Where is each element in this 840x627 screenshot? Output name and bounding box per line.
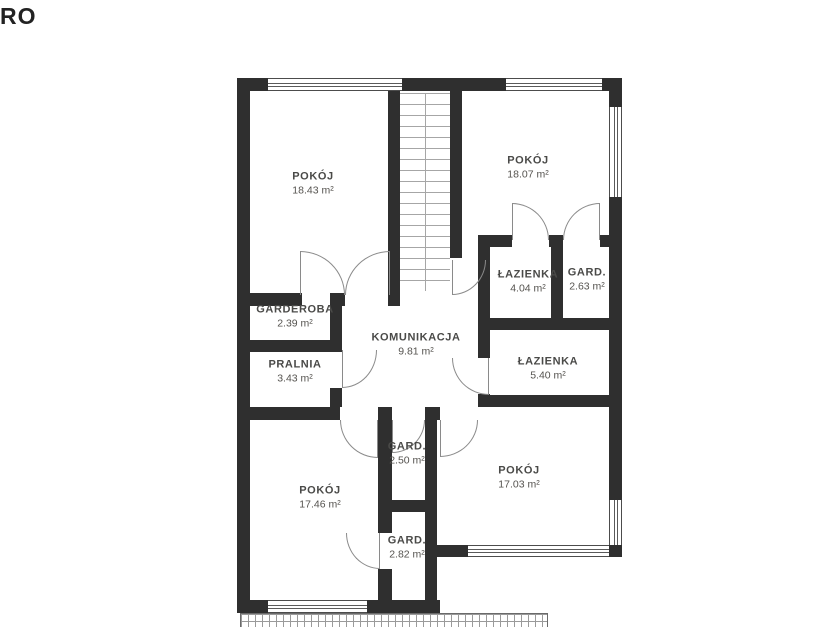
wall xyxy=(478,395,609,407)
door-arc xyxy=(345,251,390,295)
room-area: 5.40 m² xyxy=(518,369,578,382)
door-arc xyxy=(563,203,600,240)
watermark-logo: RO xyxy=(0,3,37,30)
room-name: ŁAZIENKA xyxy=(498,269,558,283)
room-name: GARD. xyxy=(388,535,426,549)
room-area: 17.46 m² xyxy=(299,498,341,511)
window xyxy=(609,107,622,197)
wall xyxy=(600,235,609,247)
staircase-icon xyxy=(400,93,450,291)
room-area: 2.82 m² xyxy=(388,548,426,561)
window xyxy=(609,500,622,545)
room-label-lazienka-5-40: ŁAZIENKA 5.40 m² xyxy=(518,356,578,383)
door-arc xyxy=(452,358,489,395)
wall xyxy=(378,420,392,533)
room-name: POKÓJ xyxy=(507,155,549,169)
room-area: 17.03 m² xyxy=(498,478,540,491)
room-label-pokoj-17-03: POKÓJ 17.03 m² xyxy=(498,465,540,492)
room-label-komunikacja-9-81: KOMUNIKACJA 9.81 m² xyxy=(371,332,460,359)
room-name: GARD. xyxy=(388,441,426,455)
door-arc xyxy=(440,420,478,457)
room-label-pokoj-17-46: POKÓJ 17.46 m² xyxy=(299,485,341,512)
room-area: 18.43 m² xyxy=(292,184,334,197)
room-name: KOMUNIKACJA xyxy=(371,332,460,346)
room-area: 18.07 m² xyxy=(507,168,549,181)
room-name: POKÓJ xyxy=(292,171,334,185)
wall xyxy=(237,407,340,420)
room-area: 2.63 m² xyxy=(568,280,606,293)
room-label-gard-2-50: GARD. 2.50 m² xyxy=(388,441,426,468)
wall xyxy=(378,407,392,420)
room-label-gard-2-82: GARD. 2.82 m² xyxy=(388,535,426,562)
room-area: 4.04 m² xyxy=(498,282,558,295)
wall xyxy=(478,235,490,330)
wall xyxy=(237,340,342,352)
wall xyxy=(450,91,462,258)
room-label-pokoj-18-43: POKÓJ 18.43 m² xyxy=(292,171,334,198)
window xyxy=(506,78,602,91)
room-name: ŁAZIENKA xyxy=(518,356,578,370)
room-label-pokoj-18-07: POKÓJ 18.07 m² xyxy=(507,155,549,182)
room-area: 2.39 m² xyxy=(256,317,334,330)
wall xyxy=(392,500,425,512)
wall xyxy=(478,318,609,330)
room-name: POKÓJ xyxy=(299,485,341,499)
door-arc xyxy=(340,420,378,458)
room-label-garderoba-2-39: GARDEROBA 2.39 m² xyxy=(256,304,334,331)
room-name: POKÓJ xyxy=(498,465,540,479)
room-name: PRALNIA xyxy=(268,359,321,373)
room-area: 3.43 m² xyxy=(268,372,321,385)
window xyxy=(268,78,402,91)
wall xyxy=(378,569,392,600)
room-area: 2.50 m² xyxy=(388,454,426,467)
wall xyxy=(478,330,490,358)
room-name: GARD. xyxy=(568,267,606,281)
window xyxy=(468,545,609,557)
door-arc xyxy=(346,533,380,569)
wall xyxy=(425,407,440,420)
room-label-pralnia-3-43: PRALNIA 3.43 m² xyxy=(268,359,321,386)
door-arc xyxy=(512,203,549,240)
room-name: GARDEROBA xyxy=(256,304,334,318)
room-label-gard-2-63: GARD. 2.63 m² xyxy=(568,267,606,294)
wall xyxy=(425,420,437,613)
room-area: 9.81 m² xyxy=(371,345,460,358)
floor-plan-screenshot: RO xyxy=(0,0,840,627)
room-label-lazienka-4-04: ŁAZIENKA 4.04 m² xyxy=(498,269,558,296)
terrace-hatch xyxy=(240,613,548,627)
wall xyxy=(330,388,342,407)
door-arc xyxy=(300,251,345,295)
window xyxy=(268,600,367,613)
